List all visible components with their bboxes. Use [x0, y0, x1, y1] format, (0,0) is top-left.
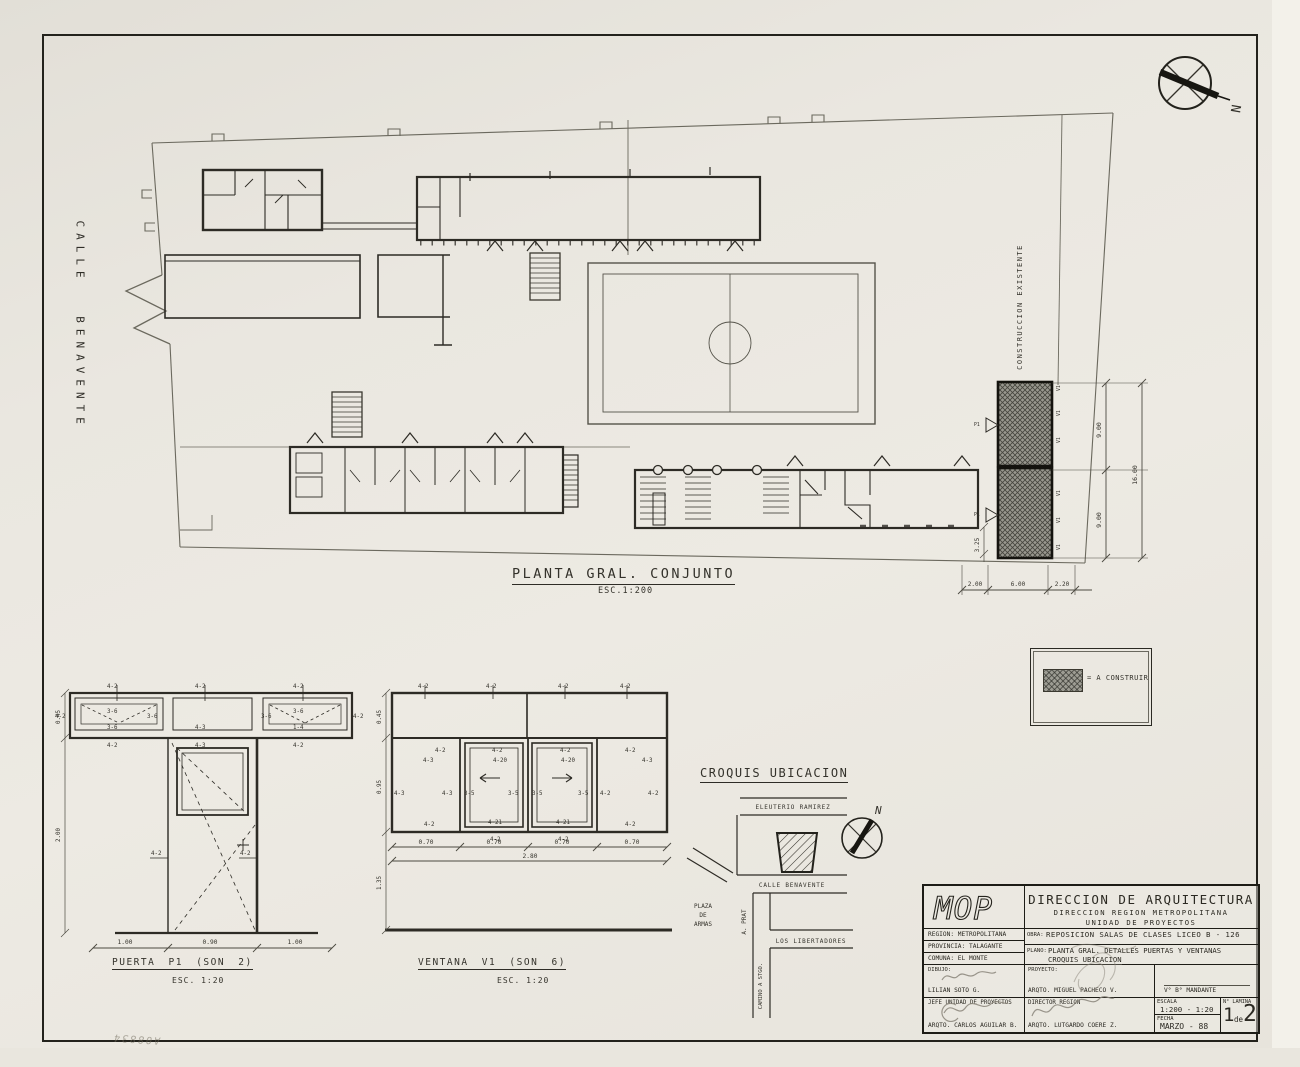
- window-dim-0-70: 0.70: [419, 839, 434, 846]
- svg-text:4-2: 4-2: [293, 743, 303, 749]
- plaza-label-3: ARMAS: [694, 921, 712, 928]
- building-top-strip: [417, 167, 760, 251]
- location-sketch: ELEUTERIO RAMIREZ CALLE BENAVENTE PLAZA …: [675, 760, 910, 1050]
- signatures-overlay: [924, 886, 1258, 1032]
- door-mark-p1: P1: [974, 512, 980, 518]
- croquis-site-parcel: [777, 833, 817, 872]
- door-tags: 4-2 4-2 4-2 3-6 3-6 4-2 3-6 3-6 4-2 3-6 …: [55, 684, 363, 857]
- svg-text:4-2: 4-2: [353, 714, 363, 720]
- window-mark-v1: V1: [1056, 385, 1062, 391]
- street-a-prat: A. PRAT: [741, 909, 748, 935]
- svg-text:4-21: 4-21: [556, 820, 570, 826]
- door-dim-1-00: 1.00: [288, 939, 303, 946]
- svg-text:4-2: 4-2: [600, 791, 610, 797]
- new-construction-blocks: P1 P1 V1 V1 V1 V1 V1 V1: [974, 382, 1062, 558]
- window-dim-0-95: 0.95: [377, 780, 383, 794]
- svg-text:4-3: 4-3: [195, 725, 206, 731]
- pencil-archive-note: A08834: [112, 1031, 161, 1045]
- building-hall: [165, 223, 417, 318]
- door-dim-0-45: 0.45: [56, 710, 62, 724]
- svg-text:4-2: 4-2: [558, 684, 568, 690]
- svg-text:4-20: 4-20: [561, 758, 575, 764]
- window-mark-v1: V1: [1056, 437, 1062, 443]
- svg-text:4-2: 4-2: [424, 822, 434, 828]
- svg-text:3-5: 3-5: [578, 791, 589, 797]
- existing-construction-label: CONSTRUCCION EXISTENTE: [1016, 244, 1024, 370]
- window-detail-drawing: 4-2 4-2 4-2 4-2 4-2 4-2 4-2 4-2 4-3 4-20…: [380, 675, 680, 1005]
- dim-6-00: 6.00: [1011, 581, 1026, 588]
- dibujo-signature: [942, 972, 996, 980]
- structure-mid: [378, 255, 452, 345]
- svg-text:3-5: 3-5: [508, 791, 519, 797]
- svg-text:4-2: 4-2: [620, 684, 630, 690]
- door-dim-2-00: 2.00: [56, 828, 62, 842]
- window-dim-0-70: 0.70: [487, 839, 502, 846]
- sports-court: [588, 263, 875, 424]
- dim-3-25: 3.25: [974, 537, 981, 552]
- svg-text:3-6: 3-6: [147, 714, 158, 720]
- door-detail-drawing: 4-2 4-2 4-2 3-6 3-6 4-2 3-6 3-6 4-2 3-6 …: [55, 675, 385, 1005]
- legend-box: = A CONSTRUIR: [1030, 648, 1152, 726]
- street-camino-a-stgo: CAMINO A STGO.: [758, 963, 764, 1009]
- svg-text:4-2: 4-2: [648, 791, 658, 797]
- door-linework: [70, 685, 352, 933]
- svg-text:3-5: 3-5: [532, 791, 543, 797]
- building-classrooms-left: [290, 433, 578, 513]
- svg-text:4-2: 4-2: [240, 851, 250, 857]
- window-title: VENTANA V1 (SON 6): [418, 957, 566, 970]
- dim-9-00: 9.00: [1095, 512, 1103, 528]
- door-dim-1-00: 1.00: [118, 939, 133, 946]
- svg-text:4-2: 4-2: [486, 684, 496, 690]
- svg-text:4-2: 4-2: [625, 822, 635, 828]
- door-scale: ESC. 1:20: [172, 976, 224, 985]
- scan-bottom-strip: [0, 1048, 1300, 1067]
- jefe-signature: [942, 1002, 1008, 1022]
- svg-text:4-2: 4-2: [107, 684, 117, 690]
- svg-text:4-3: 4-3: [423, 758, 434, 764]
- window-mark-v1: V1: [1056, 410, 1062, 416]
- proyecto-signature: [1074, 953, 1115, 992]
- stair-a: [332, 392, 362, 437]
- svg-text:3-6: 3-6: [261, 714, 272, 720]
- svg-text:4-3: 4-3: [442, 791, 453, 797]
- svg-text:4-2: 4-2: [293, 684, 303, 690]
- window-mark-v1: V1: [1056, 490, 1062, 496]
- stray-scribble: [1072, 944, 1136, 949]
- site-boundary: [126, 113, 1113, 563]
- svg-text:4-2: 4-2: [107, 743, 117, 749]
- scan-edge-strip: [1272, 0, 1300, 1067]
- street-los-libertadores: LOS LIBERTADORES: [776, 938, 847, 945]
- window-linework: [385, 685, 672, 930]
- svg-text:4-20: 4-20: [493, 758, 507, 764]
- svg-text:4-2: 4-2: [560, 748, 570, 754]
- window-mark-v1: V1: [1056, 517, 1062, 523]
- svg-text:3-6: 3-6: [293, 709, 304, 715]
- north-label: N: [1227, 103, 1243, 113]
- stair-b: [530, 253, 560, 300]
- svg-text:4-2: 4-2: [435, 748, 445, 754]
- plaza-label-2: DE: [699, 912, 707, 919]
- dim-2-00: 2.00: [968, 581, 983, 588]
- svg-text:3-6: 3-6: [107, 725, 118, 731]
- plan-scale: ESC.1:200: [598, 586, 653, 596]
- door-dim-0-90: 0.90: [203, 939, 218, 946]
- svg-text:4-2: 4-2: [418, 684, 428, 690]
- svg-text:4-3: 4-3: [642, 758, 653, 764]
- croquis-north-arrow-icon: N: [842, 804, 882, 858]
- svg-text:4-2: 4-2: [195, 684, 205, 690]
- building-classrooms-right: [635, 456, 978, 528]
- svg-text:4-21: 4-21: [488, 820, 502, 826]
- street-calle-benavente: CALLE BENAVENTE: [759, 882, 825, 889]
- svg-text:4-2: 4-2: [492, 748, 502, 754]
- croquis-north-label: N: [874, 804, 882, 817]
- plan-title: PLANTA GRAL. CONJUNTO: [512, 566, 735, 585]
- window-dim-0-70: 0.70: [625, 839, 640, 846]
- dim-9-00: 9.00: [1095, 422, 1103, 438]
- svg-text:3-5: 3-5: [464, 791, 475, 797]
- dim-16-00: 16.00: [1131, 465, 1139, 485]
- svg-text:4-2: 4-2: [625, 748, 635, 754]
- svg-text:4-2: 4-2: [151, 851, 161, 857]
- site-plan-drawing: P1 P1 V1 V1 V1 V1 V1 V1 CONSTRUCCION EXI…: [100, 95, 1190, 635]
- street-label-calle-benavente: CALLE BENAVENTE: [74, 221, 87, 393]
- street-eleuterio-ramirez: ELEUTERIO RAMIREZ: [755, 804, 830, 811]
- director-signature: [1032, 997, 1114, 1016]
- plaza-label-1: PLAZA: [694, 903, 712, 910]
- svg-text:1-4: 1-4: [293, 725, 304, 731]
- legend-hatch-swatch: [1043, 669, 1083, 692]
- window-dim-0-70: 0.70: [555, 839, 570, 846]
- svg-text:4-3: 4-3: [195, 743, 206, 749]
- window-scale: ESC. 1:20: [497, 976, 549, 985]
- door-mark-p1: P1: [974, 422, 980, 428]
- window-dim-0-45: 0.45: [377, 710, 383, 724]
- window-mark-v1: V1: [1056, 544, 1062, 550]
- title-block: MOP DIRECCION DE ARQUITECTURA DIRECCION …: [922, 884, 1260, 1034]
- legend-label: = A CONSTRUIR: [1087, 674, 1148, 682]
- window-dim-2-80: 2.80: [523, 853, 538, 860]
- svg-text:3-6: 3-6: [107, 709, 118, 715]
- door-title: PUERTA P1 (SON 2): [112, 957, 253, 970]
- svg-text:4-3: 4-3: [394, 791, 405, 797]
- dim-2-20: 2.20: [1055, 581, 1070, 588]
- window-dim-1-35: 1.35: [377, 876, 383, 890]
- building-top-left: [203, 170, 322, 230]
